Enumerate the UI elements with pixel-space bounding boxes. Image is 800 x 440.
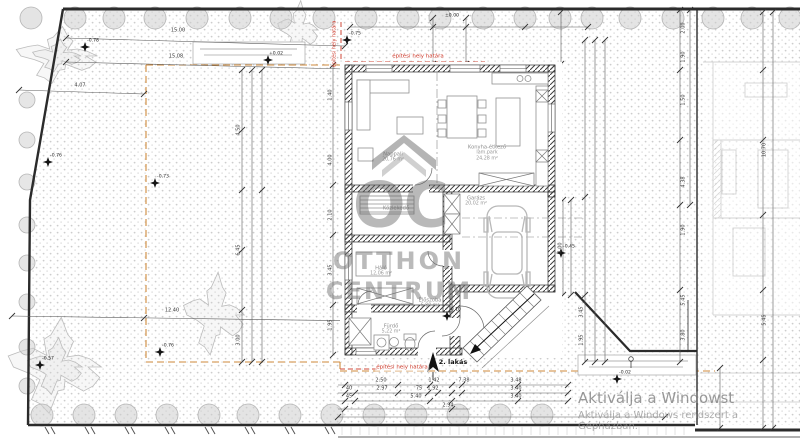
site-plan-drawing bbox=[0, 0, 800, 440]
pavement-hatching bbox=[45, 427, 684, 435]
floor-plan-screenshot: 15.0015.084.0712.402.501.427.383.48402.9… bbox=[0, 0, 800, 440]
main-building bbox=[340, 62, 583, 358]
